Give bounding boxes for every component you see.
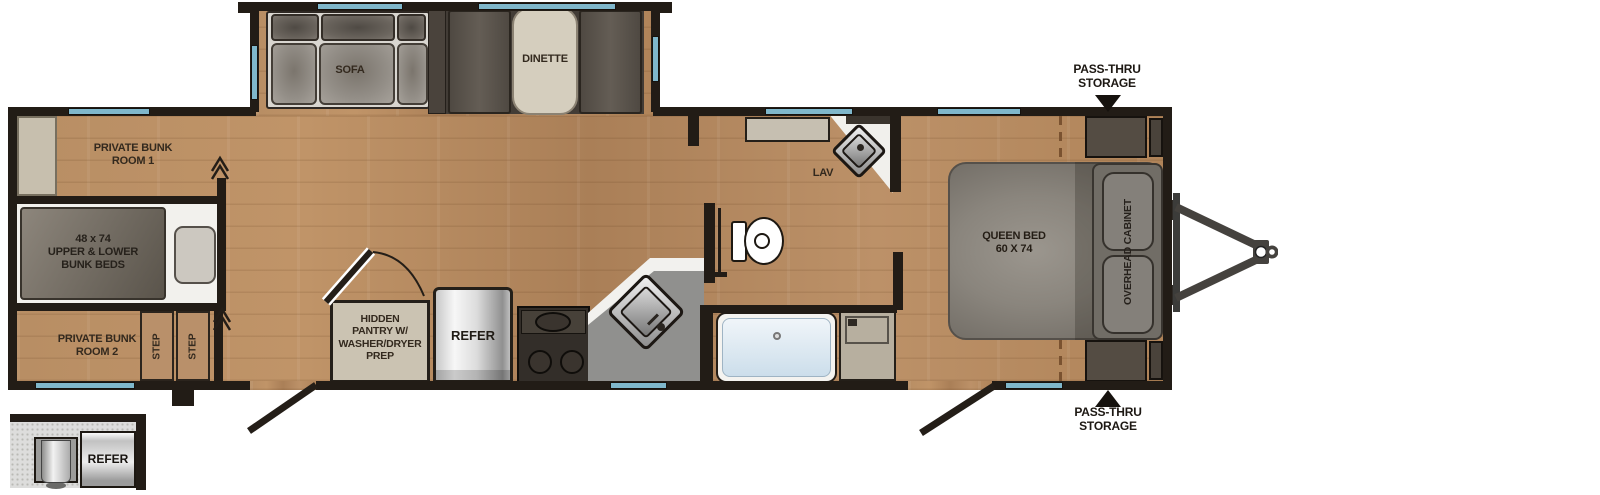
bathtub-basin (722, 318, 831, 377)
wall (1163, 107, 1172, 390)
pass-thru-top-label: PASS-THRU STORAGE (1037, 62, 1177, 90)
hitch-arm (1176, 207, 1260, 247)
bunkroom1-label: PRIVATE BUNK ROOM 1 (63, 142, 203, 168)
pantry-label: HIDDEN PANTRY W/ WASHER/DRYER PREP (330, 313, 430, 363)
pass-thru-storage-top-end (1149, 118, 1163, 157)
pass-thru-bottom-label: PASS-THRU STORAGE (1038, 405, 1178, 433)
sofa-label: SOFA (290, 64, 410, 77)
trailer-hitch (1163, 190, 1278, 315)
inset-tank-base (46, 482, 66, 489)
inset-border (10, 414, 146, 422)
pass-thru-storage-top (1085, 116, 1147, 158)
window (610, 382, 667, 389)
bath-cabinet-latch (848, 319, 857, 326)
pass-thru-storage-bottom-end (1149, 341, 1163, 380)
bath-wall (700, 305, 897, 313)
pass-thru-storage-bottom (1085, 340, 1147, 382)
window (317, 3, 403, 10)
bath-wall (890, 116, 901, 192)
toilet-flush (754, 233, 770, 249)
arrow-down-icon (1095, 95, 1121, 112)
hitch-coupler-hole (1256, 247, 1267, 258)
step2-label: STEP (188, 333, 199, 359)
lav-cabinet (745, 117, 830, 142)
interior-wall (17, 196, 219, 204)
slideout-wall-cap (659, 2, 672, 13)
stove-burner (560, 350, 584, 374)
entry-step (172, 388, 194, 406)
entry-door-swing (249, 385, 316, 431)
interior-wall (214, 311, 223, 381)
bath-wall (688, 116, 699, 146)
bedroom-door-swing (921, 386, 994, 433)
window (1005, 382, 1063, 389)
window (937, 108, 1021, 115)
lav-faucet (857, 144, 864, 151)
step-2: STEP (176, 311, 210, 381)
sofa-back-cushion (321, 14, 395, 41)
stove-burner (535, 312, 571, 332)
window (652, 36, 659, 82)
bunkroom1-wardrobe (17, 116, 57, 196)
tub-drain (773, 332, 781, 340)
bath-wall (893, 252, 903, 310)
inset-water-heater-tank (41, 440, 71, 483)
lav-label: LAV (793, 167, 853, 180)
interior-wall (17, 303, 226, 311)
window (478, 3, 616, 10)
bunkroom2-label: PRIVATE BUNK ROOM 2 (27, 333, 167, 359)
bath-wall (704, 203, 715, 283)
wall (8, 107, 17, 390)
inset-refer-label: REFER (80, 452, 136, 466)
kitchen-faucet (657, 323, 665, 331)
queen-bed-label: QUEEN BED 60 X 74 (954, 230, 1074, 256)
slideout-wall-cap (238, 2, 251, 13)
window (251, 45, 258, 100)
window (68, 108, 150, 115)
bunkbeds-label: 48 x 74 UPPER & LOWER BUNK BEDS (23, 233, 163, 272)
dinette-label: DINETTE (485, 53, 605, 66)
hitch-arm (1176, 258, 1260, 298)
sofa-back-cushion (271, 14, 319, 41)
overhead-cabinet-label: OVERHEAD CABINET (1122, 199, 1134, 305)
inset-border (136, 414, 146, 490)
hitch-ball-hole (1269, 249, 1275, 255)
stove-burner (528, 350, 552, 374)
slideout-cabinet (428, 10, 446, 114)
door-threshold-floor (250, 381, 316, 390)
overhead-cabinet-label-wrap: OVERHEAD CABINET (1092, 163, 1163, 340)
pocket-door-stop (714, 272, 727, 277)
bath-wall (700, 310, 713, 381)
door-threshold-floor (908, 381, 992, 390)
pocket-door (718, 208, 721, 276)
window (765, 108, 853, 115)
window (35, 382, 135, 389)
refer-label: REFER (433, 328, 513, 343)
sofa-back-cushion (397, 14, 426, 41)
bunk-nightstand (174, 226, 216, 284)
rv-floorplan: SOFA DINETTE PRIVATE BUNK ROOM 1 48 x 74… (0, 0, 1600, 495)
interior-wall (217, 178, 226, 309)
